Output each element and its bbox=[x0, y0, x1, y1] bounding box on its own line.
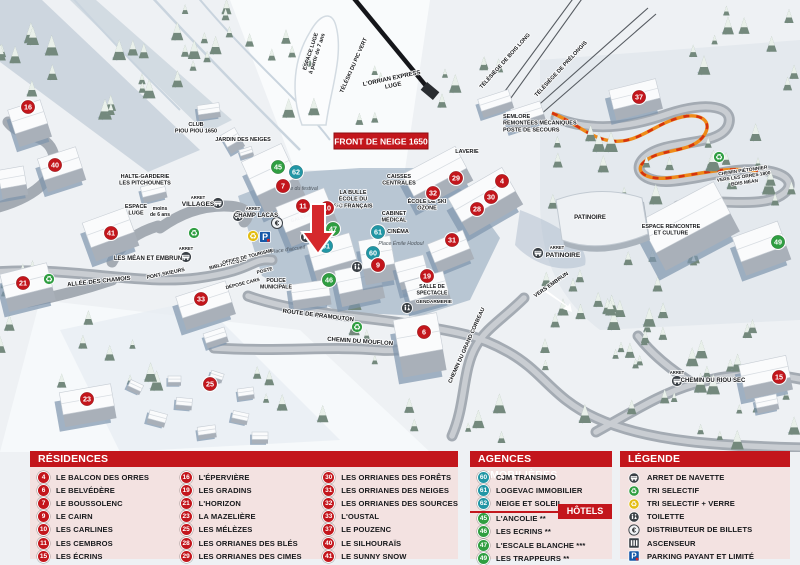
legend-item[interactable]: 31LES ORRIANES DES NEIGES bbox=[323, 484, 458, 497]
bus-icon bbox=[533, 248, 544, 259]
marker-badge-21: 21 bbox=[181, 498, 192, 509]
svg-text:45: 45 bbox=[274, 163, 282, 172]
svg-text:23: 23 bbox=[83, 395, 91, 404]
map-label: ARRET bbox=[246, 206, 261, 211]
legend-item[interactable]: TOILETTE bbox=[628, 510, 790, 523]
legend-item-label: LES GRADINS bbox=[199, 486, 252, 495]
legend-item-label: L'ÉPERVIÈRE bbox=[199, 473, 250, 482]
svg-text:6: 6 bbox=[422, 328, 426, 337]
legend-item-label: LES ECRINS ** bbox=[496, 527, 551, 536]
svg-text:€: € bbox=[275, 218, 280, 227]
map-marker-31[interactable]: 31 bbox=[444, 232, 460, 248]
map-label: HALTE-GARDERIELES PITCHOUNETS bbox=[119, 174, 171, 187]
recycle-green-icon: ♻ bbox=[44, 274, 55, 285]
map-label: moinsde 6 ans bbox=[150, 206, 170, 218]
svg-text:11: 11 bbox=[299, 202, 307, 211]
legend-symbols: LÉGENDE ARRET DE NAVETTE♻TRI SELECTIF♻TR… bbox=[620, 451, 790, 559]
legend-item[interactable]: 29LES ORRIANES DES CIMES bbox=[181, 550, 316, 563]
marker-badge-45: 45 bbox=[478, 513, 489, 524]
map-label: LAVERIE bbox=[455, 149, 479, 155]
legend-item-label: L'HORIZON bbox=[199, 499, 241, 508]
map-marker-32[interactable]: 32 bbox=[425, 185, 441, 201]
marker-badge-25: 25 bbox=[181, 524, 192, 535]
legend-item[interactable]: 25LES MÉLÈZES bbox=[181, 523, 316, 536]
building bbox=[166, 376, 181, 387]
euro-icon: € bbox=[272, 218, 283, 229]
svg-text:21: 21 bbox=[19, 279, 27, 288]
marker-badge-4: 4 bbox=[38, 472, 49, 483]
map-label: CHEMIN DU RIOU SEC bbox=[681, 378, 746, 384]
legend-item-label: LES CEMBROS bbox=[56, 539, 113, 548]
svg-text:31: 31 bbox=[448, 236, 456, 245]
legend-item[interactable]: ARRET DE NAVETTE bbox=[628, 471, 790, 484]
legend-item-label: CJM TRANSIMO bbox=[496, 473, 556, 482]
svg-text:61: 61 bbox=[374, 228, 382, 237]
residences-column: 4LE BALCON DES ORRES6LE BELVÉDÈRE7LE BOU… bbox=[30, 467, 173, 563]
map-marker-61[interactable]: 61 bbox=[370, 224, 386, 240]
legend-item-label: LES MÉLÈZES bbox=[199, 525, 253, 534]
recycle-green-icon: ♻ bbox=[189, 228, 200, 239]
svg-text:32: 32 bbox=[429, 189, 437, 198]
euro-icon: € bbox=[629, 525, 639, 535]
legend-item[interactable]: ♻TRI SELECTIF bbox=[628, 484, 790, 497]
svg-text:30: 30 bbox=[487, 193, 495, 202]
legend-item[interactable]: 7LE BOUSSOLENC bbox=[38, 497, 173, 510]
building bbox=[0, 166, 29, 203]
map-label: LES MÉAN ET EMBRUN bbox=[114, 254, 182, 262]
map-marker-6[interactable]: 6 bbox=[416, 324, 432, 340]
legend-item-label: DISTRIBUTEUR DE BILLETS bbox=[647, 525, 752, 534]
legend-item-label: LES ORRIANES DES BLÉS bbox=[199, 539, 298, 548]
map-marker-40[interactable]: 40 bbox=[47, 157, 63, 173]
marker-badge-33: 33 bbox=[323, 511, 334, 522]
map-label: ARRET bbox=[191, 195, 206, 200]
recycle-yellow-icon: ♻ bbox=[248, 231, 259, 242]
marker-badge-19: 19 bbox=[181, 485, 192, 496]
marker-badge-10: 10 bbox=[38, 524, 49, 535]
map-label: VILLAGES bbox=[182, 201, 215, 208]
svg-text:♻: ♻ bbox=[631, 486, 638, 495]
legend-item-label: TRI SELECTIF bbox=[647, 486, 699, 495]
legend-item-label: LE BELVÉDÈRE bbox=[56, 486, 115, 495]
map-marker-21[interactable]: 21 bbox=[15, 275, 31, 291]
ice-rink-building bbox=[556, 191, 650, 251]
legend-item-label: TOILETTE bbox=[647, 512, 684, 521]
svg-text:♻: ♻ bbox=[190, 229, 197, 238]
map-marker-37[interactable]: 37 bbox=[631, 89, 647, 105]
agences-header: AGENCES IMMOBILIÈRES bbox=[470, 451, 612, 467]
svg-text:49: 49 bbox=[774, 238, 782, 247]
legend-item[interactable]: 46LES ECRINS ** bbox=[478, 525, 612, 538]
legend-item-label: LE SILHOURAÏS bbox=[341, 539, 401, 548]
legend-item[interactable]: ♻TRI SELECTIF + VERRE bbox=[628, 497, 790, 510]
map-marker-15[interactable]: 15 bbox=[771, 369, 787, 385]
marker-badge-30: 30 bbox=[323, 472, 334, 483]
marker-badge-29: 29 bbox=[181, 551, 192, 562]
svg-text:♻: ♻ bbox=[353, 323, 360, 332]
marker-badge-7: 7 bbox=[38, 498, 49, 509]
svg-text:40: 40 bbox=[51, 161, 59, 170]
map-marker-16[interactable]: 16 bbox=[20, 99, 36, 115]
map-label: PATINOIRE bbox=[546, 252, 581, 259]
building bbox=[195, 425, 217, 442]
svg-text:9: 9 bbox=[376, 261, 380, 270]
parking-icon: P bbox=[260, 232, 271, 243]
map-marker-11[interactable]: 11 bbox=[295, 198, 311, 214]
legend-item-label: LES CARLINES bbox=[56, 525, 113, 534]
legend-item[interactable]: 11LES CEMBROS bbox=[38, 536, 173, 549]
marker-badge-32: 32 bbox=[323, 498, 334, 509]
map-marker-49[interactable]: 49 bbox=[770, 234, 786, 250]
svg-text:16: 16 bbox=[24, 103, 32, 112]
legend-residences: RÉSIDENCES 4LE BALCON DES ORRES6LE BELVÉ… bbox=[30, 451, 458, 559]
legend-item-label: LE BALCON DES ORRES bbox=[56, 473, 149, 482]
recycle-yellow-icon: ♻ bbox=[629, 499, 639, 509]
map-marker-7[interactable]: 7 bbox=[275, 178, 291, 194]
marker-badge-40: 40 bbox=[323, 538, 334, 549]
legend-item-label: LE POUZENC bbox=[341, 525, 391, 534]
marker-badge-49: 49 bbox=[478, 553, 489, 564]
legend-item[interactable]: 6LE BELVÉDÈRE bbox=[38, 484, 173, 497]
marker-badge-60: 60 bbox=[478, 472, 489, 483]
map-marker-29[interactable]: 29 bbox=[448, 170, 464, 186]
marker-badge-16: 16 bbox=[181, 472, 192, 483]
legend-item[interactable]: 28LES ORRIANES DES BLÉS bbox=[181, 536, 316, 549]
bus-icon bbox=[629, 472, 639, 482]
svg-text:62: 62 bbox=[292, 168, 300, 177]
marker-badge-41: 41 bbox=[323, 551, 334, 562]
svg-text:60: 60 bbox=[369, 249, 377, 258]
svg-text:♻: ♻ bbox=[249, 232, 256, 241]
map-label: SALLE DESPECTACLE bbox=[416, 284, 448, 296]
marker-badge-31: 31 bbox=[323, 485, 334, 496]
marker-badge-6: 6 bbox=[38, 485, 49, 496]
legend-item-label: ARRET DE NAVETTE bbox=[647, 473, 724, 482]
legend-item-label: L'ESCALE BLANCHE *** bbox=[496, 541, 585, 550]
legend-item-label: L'ANCOLIE ** bbox=[496, 514, 546, 523]
svg-text:7: 7 bbox=[281, 182, 285, 191]
legend-item-label: LE SUNNY SNOW bbox=[341, 552, 406, 561]
legend-item[interactable]: 37LE POUZENC bbox=[323, 523, 458, 536]
legende-header: LÉGENDE bbox=[620, 451, 790, 467]
map-marker-28[interactable]: 28 bbox=[469, 201, 485, 217]
legend-item[interactable]: 15LES ÉCRINS bbox=[38, 550, 173, 563]
legend-item[interactable]: 19LES GRADINS bbox=[181, 484, 316, 497]
svg-text:19: 19 bbox=[423, 272, 431, 281]
legend-item-label: L'OUSTAL bbox=[341, 512, 379, 521]
map-label: PATINOIRE bbox=[574, 215, 606, 221]
legend-item[interactable]: 33L'OUSTAL bbox=[323, 510, 458, 523]
legend-item-label: LOGEVAC IMMOBILIER bbox=[496, 486, 582, 495]
marker-badge-37: 37 bbox=[323, 524, 334, 535]
map-marker-9[interactable]: 9 bbox=[370, 257, 386, 273]
legend-item-label: PARKING PAYANT ET LIMITÉ bbox=[647, 552, 754, 561]
legend-item[interactable]: 23LA MAZELIÈRE bbox=[181, 510, 316, 523]
legend-item[interactable]: 30LES ORRIANES DES FORÊTS bbox=[323, 471, 458, 484]
svg-text:♻: ♻ bbox=[631, 499, 638, 508]
map-marker-46[interactable]: 46 bbox=[321, 272, 337, 288]
svg-text:FRONT DE NEIGE 1650: FRONT DE NEIGE 1650 bbox=[334, 137, 428, 147]
legend-item-label: LE BOUSSOLENC bbox=[56, 499, 123, 508]
legend-item-label: LE CAIRN bbox=[56, 512, 93, 521]
svg-text:37: 37 bbox=[635, 93, 643, 102]
recycle-green-icon: ♻ bbox=[629, 485, 639, 495]
map-marker-19[interactable]: 19 bbox=[419, 268, 435, 284]
marker-badge-11: 11 bbox=[38, 538, 49, 549]
map-label: JARDIN DES NEIGES bbox=[215, 137, 271, 143]
svg-text:♻: ♻ bbox=[715, 153, 722, 162]
legend-item[interactable]: PPARKING PAYANT ET LIMITÉ bbox=[628, 550, 790, 563]
building bbox=[250, 432, 268, 445]
legend-item-label: LES ORRIANES DES SOURCES bbox=[341, 499, 458, 508]
residences-column: 16L'ÉPERVIÈRE19LES GRADINS21L'HORIZON23L… bbox=[173, 467, 316, 563]
legend-item-label: LES TRAPPEURS ** bbox=[496, 554, 569, 563]
marker-badge-9: 9 bbox=[38, 511, 49, 522]
map-marker-45[interactable]: 45 bbox=[270, 159, 286, 175]
svg-text:♻: ♻ bbox=[45, 275, 52, 284]
legend-item[interactable]: 61LOGEVAC IMMOBILIER bbox=[478, 484, 612, 497]
map-label: Place Émile Hodoul bbox=[378, 240, 424, 247]
toilet-icon bbox=[402, 303, 413, 314]
legend-item-label: LES ÉCRINS bbox=[56, 552, 103, 561]
map-label: ARRET bbox=[179, 246, 194, 251]
map-marker-23[interactable]: 23 bbox=[79, 391, 95, 407]
svg-text:€: € bbox=[632, 525, 636, 534]
divider bbox=[470, 511, 562, 513]
map-marker-33[interactable]: 33 bbox=[193, 291, 209, 307]
building bbox=[235, 387, 255, 402]
svg-text:15: 15 bbox=[775, 373, 783, 382]
toilet-icon bbox=[352, 262, 363, 273]
marker-badge-28: 28 bbox=[181, 538, 192, 549]
svg-text:4: 4 bbox=[500, 177, 504, 186]
residences-column: 30LES ORRIANES DES FORÊTS31LES ORRIANES … bbox=[315, 467, 458, 563]
ski-resort-map: ♻♻♻♻♻€P CLUBPIOU PIOU 1650JARDIN DES NEI… bbox=[0, 0, 800, 452]
recycle-green-icon: ♻ bbox=[714, 152, 725, 163]
legend-item[interactable]: 9LE CAIRN bbox=[38, 510, 173, 523]
map-marker-30[interactable]: 30 bbox=[483, 189, 499, 205]
legend-item[interactable]: €DISTRIBUTEUR DE BILLETS bbox=[628, 523, 790, 536]
toilet-icon bbox=[629, 512, 639, 522]
building bbox=[194, 103, 221, 122]
legend-item-label: ASCENSEUR bbox=[647, 539, 696, 548]
legend-item[interactable]: 21L'HORIZON bbox=[181, 497, 316, 510]
residences-header: RÉSIDENCES bbox=[30, 451, 458, 467]
map-label: CINÉMA bbox=[387, 227, 409, 235]
map-label: CHAMP LACAS bbox=[234, 213, 278, 219]
map-label: ARRET bbox=[550, 245, 565, 250]
legend-item-label: LES ORRIANES DES NEIGES bbox=[341, 486, 449, 495]
legend-item-label: LA MAZELIÈRE bbox=[199, 512, 256, 521]
map-marker-25[interactable]: 25 bbox=[202, 376, 218, 392]
legend-item-label: NEIGE ET SOLEIL bbox=[496, 499, 562, 508]
resort-map-page: ♻♻♻♻♻€P CLUBPIOU PIOU 1650JARDIN DES NEI… bbox=[0, 0, 800, 565]
map-label: CAISSESCENTRALES bbox=[382, 174, 416, 187]
map-label: GENDARMERIE bbox=[416, 299, 453, 305]
building bbox=[174, 397, 193, 411]
legend-item[interactable]: 4LE BALCON DES ORRES bbox=[38, 471, 173, 484]
map-marker-4[interactable]: 4 bbox=[494, 173, 510, 189]
svg-text:41: 41 bbox=[107, 229, 115, 238]
legend-item-label: LES ORRIANES DES FORÊTS bbox=[341, 473, 451, 482]
legend-item-label: TRI SELECTIF + VERRE bbox=[647, 499, 735, 508]
svg-text:28: 28 bbox=[473, 205, 481, 214]
svg-text:46: 46 bbox=[325, 276, 333, 285]
map-label: CABINETMÉDICAL bbox=[381, 211, 407, 224]
elevator-icon bbox=[629, 538, 639, 548]
marker-badge-61: 61 bbox=[478, 485, 489, 496]
legend-item[interactable]: 41LE SUNNY SNOW bbox=[323, 550, 458, 563]
front-de-neige-banner: FRONT DE NEIGE 1650 bbox=[334, 133, 428, 149]
legend-item[interactable]: 49LES TRAPPEURS ** bbox=[478, 552, 612, 565]
legend-item[interactable]: ASCENSEUR bbox=[628, 536, 790, 549]
map-label: ARRET bbox=[670, 370, 685, 375]
svg-text:29: 29 bbox=[452, 174, 460, 183]
svg-text:33: 33 bbox=[197, 295, 205, 304]
legend-item[interactable]: 10LES CARLINES bbox=[38, 523, 173, 536]
marker-badge-47: 47 bbox=[478, 540, 489, 551]
map-marker-62[interactable]: 62 bbox=[288, 164, 304, 180]
legend-item[interactable]: 32LES ORRIANES DES SOURCES bbox=[323, 497, 458, 510]
marker-badge-62: 62 bbox=[478, 498, 489, 509]
legend-item[interactable]: 47L'ESCALE BLANCHE *** bbox=[478, 538, 612, 551]
legend-agences: AGENCES IMMOBILIÈRES 60CJM TRANSIMO61LOG… bbox=[470, 451, 612, 559]
parking-icon: P bbox=[629, 551, 639, 561]
svg-text:25: 25 bbox=[206, 380, 214, 389]
marker-badge-23: 23 bbox=[181, 511, 192, 522]
legend-item-label: LES ORRIANES DES CIMES bbox=[199, 552, 302, 561]
marker-badge-46: 46 bbox=[478, 526, 489, 537]
hotels-header: HÔTELS bbox=[558, 504, 612, 519]
legend-item[interactable]: 40LE SILHOURAÏS bbox=[323, 536, 458, 549]
map-marker-41[interactable]: 41 bbox=[103, 225, 119, 241]
legend-item[interactable]: 16L'ÉPERVIÈRE bbox=[181, 471, 316, 484]
marker-badge-15: 15 bbox=[38, 551, 49, 562]
